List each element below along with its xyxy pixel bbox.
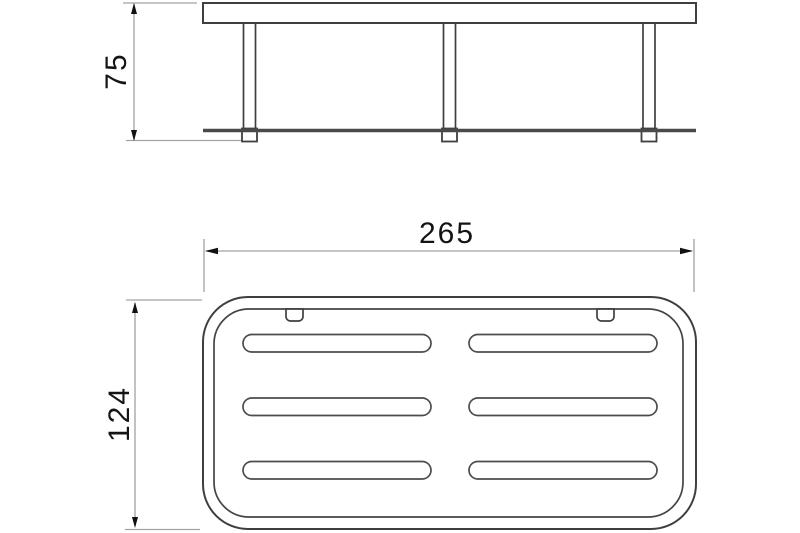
dimension-label-width: 265 xyxy=(419,217,475,250)
basket-slot-row3-right xyxy=(469,462,657,480)
shelf-leg-left xyxy=(244,22,256,130)
mount-tab-right xyxy=(597,309,614,321)
technical-drawing-canvas: 75 265 xyxy=(0,0,800,533)
arrowhead-up-icon xyxy=(132,302,138,313)
basket-slot-row2-left xyxy=(243,398,431,416)
dimension-width-265: 265 xyxy=(204,217,694,292)
arrowhead-down-icon xyxy=(132,517,138,528)
mount-tab-left xyxy=(286,309,303,321)
side-view xyxy=(203,3,696,142)
plan-view xyxy=(203,297,696,529)
dimension-depth-124: 124 xyxy=(103,300,202,530)
arrowhead-down-icon xyxy=(131,130,137,141)
shelf-leg-right xyxy=(643,22,655,130)
basket-slot-row3-left xyxy=(243,462,431,480)
arrowhead-up-icon xyxy=(131,3,137,14)
shelf-leg-middle xyxy=(444,22,456,130)
basket-slot-row1-left xyxy=(243,335,431,353)
basket-slot-row2-right xyxy=(469,398,657,416)
drawing-svg: 75 265 xyxy=(0,0,800,533)
arrowhead-left-icon xyxy=(205,248,218,254)
dimension-label-depth: 124 xyxy=(103,386,136,442)
basket-slot-row1-right xyxy=(469,335,657,353)
arrowhead-right-icon xyxy=(680,248,693,254)
shelf-top-profile xyxy=(203,3,696,23)
dimension-label-height: 75 xyxy=(100,52,133,89)
